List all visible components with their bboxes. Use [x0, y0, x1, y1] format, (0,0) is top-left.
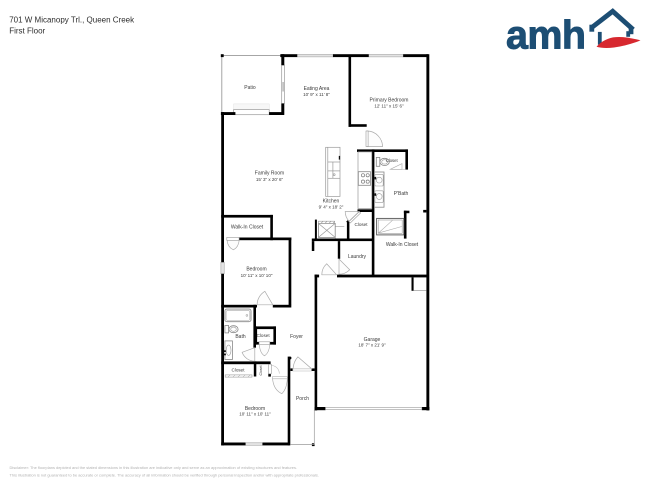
- svg-text:701 W Micanopy Trl., Queen Cre: 701 W Micanopy Trl., Queen Creek: [9, 15, 135, 24]
- svg-text:Laundry: Laundry: [348, 254, 367, 260]
- svg-text:Disclaimer: The floorplans dep: Disclaimer: The floorplans depicted and …: [10, 465, 298, 470]
- svg-text:P'Bath: P'Bath: [394, 191, 409, 197]
- svg-text:Foyer: Foyer: [290, 334, 303, 340]
- svg-text:Closet: Closet: [386, 158, 399, 163]
- svg-text:9' 4" x 18' 2": 9' 4" x 18' 2": [319, 204, 344, 209]
- svg-text:Bath: Bath: [235, 334, 246, 340]
- svg-text:Patio: Patio: [244, 85, 256, 91]
- svg-text:10' 11" x 10' 11": 10' 11" x 10' 11": [239, 411, 271, 416]
- svg-text:10' 11" x 10' 10": 10' 11" x 10' 10": [241, 273, 273, 278]
- svg-text:Closet: Closet: [354, 222, 368, 227]
- svg-text:Porch: Porch: [296, 396, 309, 402]
- svg-text:Eating Area: Eating Area: [304, 86, 330, 92]
- svg-text:First Floor: First Floor: [9, 26, 45, 35]
- svg-text:Bedroom: Bedroom: [246, 267, 266, 273]
- svg-text:18' 7" x 21' 9": 18' 7" x 21' 9": [358, 342, 386, 347]
- svg-text:15' 3" x 20' 6": 15' 3" x 20' 6": [256, 177, 284, 182]
- svg-text:Family Room: Family Room: [255, 171, 284, 177]
- svg-text:This illustration is not guara: This illustration is not guaranteed to b…: [10, 473, 319, 478]
- svg-text:10' 9" x 11' 8": 10' 9" x 11' 8": [303, 92, 330, 97]
- svg-text:Walk-In Closet: Walk-In Closet: [231, 225, 264, 231]
- svg-text:Closet: Closet: [259, 366, 263, 376]
- svg-text:Walk-In Closet: Walk-In Closet: [386, 242, 419, 248]
- svg-text:amh: amh: [506, 14, 585, 58]
- svg-text:Closet: Closet: [257, 333, 271, 338]
- svg-text:12' 11" x 15' 6": 12' 11" x 15' 6": [374, 104, 404, 109]
- svg-text:Closet: Closet: [231, 368, 245, 373]
